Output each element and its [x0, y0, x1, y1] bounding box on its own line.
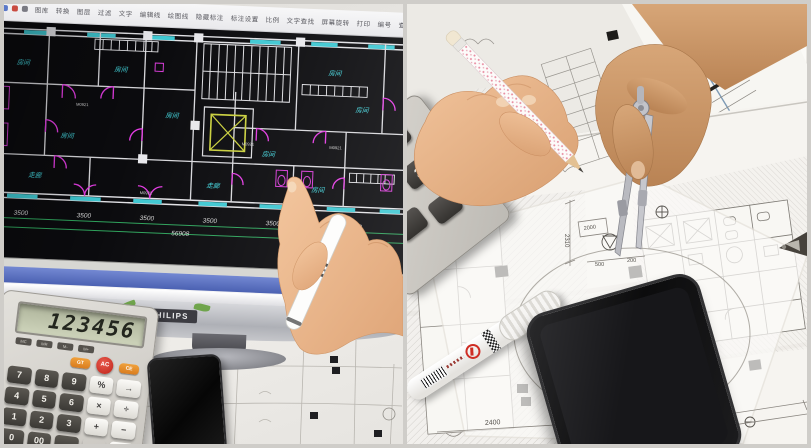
elevator-shaft: [202, 107, 253, 158]
ce-key[interactable]: CE: [119, 362, 140, 374]
svg-text:2400: 2400: [485, 419, 501, 427]
svg-text:200: 200: [627, 258, 636, 264]
checker-band: [481, 329, 501, 353]
grid-icon[interactable]: [393, 287, 398, 292]
digit-key[interactable]: [426, 188, 464, 225]
cad-screen[interactable]: 房间 房间 房间 房间 房间 房间 房间 走廊 房间 走廊 M0921 M092…: [4, 21, 403, 275]
gt-key[interactable]: GT: [70, 356, 91, 368]
gear-icon[interactable]: [22, 6, 28, 12]
menu-item[interactable]: 比例: [265, 14, 279, 25]
svg-text:房间: 房间: [16, 58, 31, 67]
svg-text:房间: 房间: [355, 106, 370, 115]
digit-key[interactable]: [407, 205, 430, 242]
digit-key[interactable]: 2: [407, 154, 438, 191]
arrow-key[interactable]: →: [116, 379, 142, 399]
digit-key[interactable]: 5: [31, 389, 56, 409]
menu-item[interactable]: 绘图线: [168, 10, 189, 21]
calculator[interactable]: 123456 MCMRM-M+ GT AC CE 7 8 9 % → 4 5 6…: [4, 289, 160, 444]
memory-key[interactable]: M-: [57, 342, 74, 351]
svg-text:房间: 房间: [311, 186, 326, 195]
menu-item[interactable]: 转换: [56, 5, 70, 16]
toolbar-icons: [4, 5, 28, 12]
photo-right-blueprints: 9000 30700 2400 2310 2000 500 200 0 1 2: [407, 4, 807, 444]
menu-item[interactable]: 编号: [377, 19, 391, 30]
composite-photo-frame: 图库转换图层过滤文字编辑线绘图线隐藏标注标注设置比例文字查找屏幕旋转打印编号查询…: [0, 0, 811, 448]
digit-key[interactable]: 00: [26, 431, 51, 444]
total-dimension: 56908: [171, 230, 189, 238]
key-spacer: [81, 438, 106, 444]
menu-item[interactable]: 屏幕旋转: [321, 16, 349, 27]
svg-text:M0921: M0921: [76, 102, 89, 108]
smartphone[interactable]: [147, 354, 228, 444]
digit-key[interactable]: 7: [7, 365, 32, 385]
calculator-keypad: 7 8 9 % → 4 5 6 × ÷ 1 2 3 + − 0 00 . =: [4, 365, 142, 444]
menu-item[interactable]: 打印: [356, 18, 370, 29]
digit-key[interactable]: 6: [59, 393, 85, 413]
menu-item[interactable]: 标注设置: [231, 13, 259, 24]
plus-key[interactable]: +: [84, 417, 109, 437]
menu-item[interactable]: 查询: [398, 20, 403, 31]
equals-key[interactable]: =: [108, 441, 134, 444]
minus-key[interactable]: −: [111, 420, 137, 440]
memory-key[interactable]: MC: [15, 337, 32, 346]
digit-key[interactable]: 1: [4, 407, 27, 427]
marker-label-text: [446, 355, 464, 368]
svg-text:M0921: M0921: [242, 141, 255, 147]
menu-item[interactable]: 文字: [119, 8, 133, 19]
record-icon[interactable]: [384, 286, 389, 291]
digit-key[interactable]: 0: [407, 119, 413, 156]
percent-key[interactable]: %: [89, 375, 114, 395]
svg-text:走廊: 走廊: [28, 171, 43, 180]
svg-text:房间: 房间: [114, 66, 129, 75]
svg-text:M0921: M0921: [140, 190, 153, 196]
menu-item[interactable]: 图层: [77, 6, 91, 17]
svg-text:M0921: M0921: [329, 145, 342, 151]
block-icon[interactable]: [12, 5, 18, 11]
multiply-key[interactable]: ×: [86, 396, 111, 416]
digit-key[interactable]: 9: [61, 372, 87, 392]
memory-key[interactable]: MR: [36, 340, 53, 349]
digit-key[interactable]: 0: [4, 428, 24, 444]
svg-text:房间: 房间: [262, 150, 277, 159]
photo-left-cad-monitor: 图库转换图层过滤文字编辑线绘图线隐藏标注标注设置比例文字查找屏幕旋转打印编号查询…: [4, 4, 403, 444]
memory-key[interactable]: M+: [78, 345, 95, 354]
digit-key[interactable]: 3: [56, 414, 82, 434]
svg-text:2310: 2310: [563, 234, 569, 248]
phone-screen: [538, 285, 731, 444]
svg-text:500: 500: [595, 262, 604, 268]
snap-icon[interactable]: [375, 286, 380, 291]
menu-item[interactable]: 文字查找: [286, 15, 314, 26]
digit-key[interactable]: 4: [4, 386, 29, 406]
menu-item[interactable]: 过滤: [98, 7, 112, 18]
svg-text:房间: 房间: [328, 69, 343, 78]
divide-key[interactable]: ÷: [114, 400, 140, 420]
menu-item[interactable]: 隐藏标注: [196, 11, 224, 22]
svg-text:走廊: 走廊: [206, 182, 221, 191]
svg-text:房间: 房间: [60, 132, 75, 141]
digit-key[interactable]: 2: [29, 410, 54, 430]
menu-item[interactable]: 编辑线: [140, 9, 161, 20]
svg-text:房间: 房间: [165, 112, 180, 121]
digit-key[interactable]: .: [54, 435, 80, 444]
ac-key[interactable]: AC: [95, 356, 114, 375]
red-circle-logo: [463, 341, 484, 362]
menu-item[interactable]: 图库: [35, 4, 49, 15]
stair-block: [202, 44, 292, 103]
cloud-icon[interactable]: [4, 5, 8, 11]
digit-key[interactable]: 8: [34, 369, 59, 389]
